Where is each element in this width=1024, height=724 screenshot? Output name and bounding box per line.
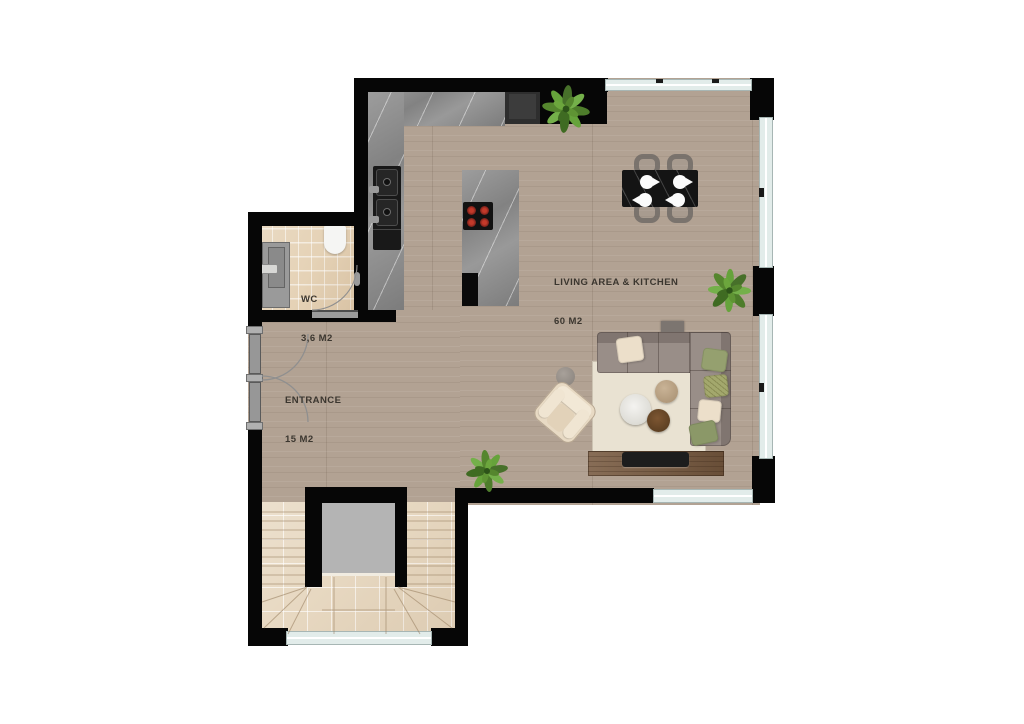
wc-label: WC 3,6 M2 [301,267,333,371]
entrance-label: ENTRANCE 15 M2 [285,368,341,472]
wc-area: 3,6 M2 [301,332,333,345]
plant-icon [706,267,753,314]
floor-plan: LIVING AREA & KITCHEN 60 M2 WC 3,6 M2 EN… [0,0,1024,724]
wc-name: WC [301,293,333,306]
plant-icon [465,449,509,493]
living-room-area: 60 M2 [554,315,678,328]
stair-steps [262,512,455,634]
entrance-area: 15 M2 [285,433,341,446]
living-room-name: LIVING AREA & KITCHEN [554,276,678,289]
linework-layer [0,0,1024,724]
living-room-label: LIVING AREA & KITCHEN 60 M2 [554,250,678,354]
entrance-name: ENTRANCE [285,394,341,407]
plant-icon [541,84,591,134]
